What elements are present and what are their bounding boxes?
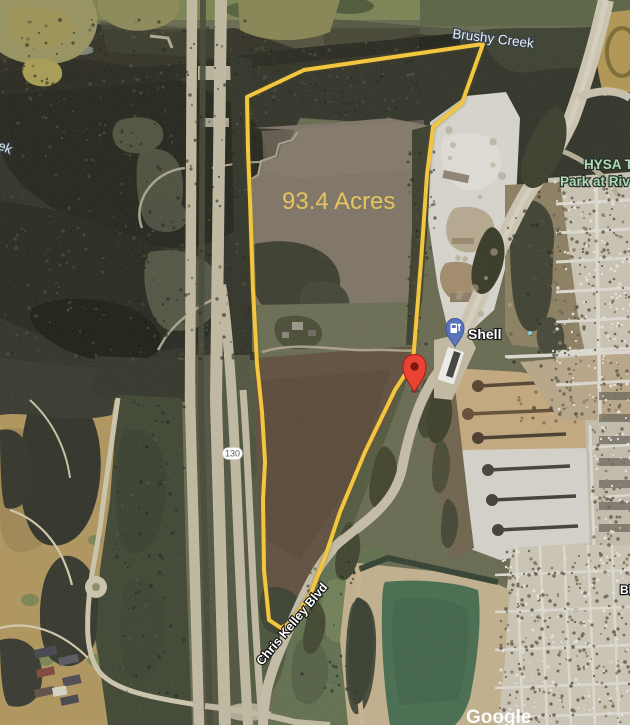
svg-text:Google: Google bbox=[466, 707, 531, 725]
svg-text:Bl: Bl bbox=[620, 583, 630, 597]
svg-text:130: 130 bbox=[225, 449, 240, 459]
svg-text:Park at Riv: Park at Riv bbox=[560, 174, 630, 189]
svg-text:93.4 Acres: 93.4 Acres bbox=[282, 188, 395, 215]
svg-text:HYSA T: HYSA T bbox=[584, 157, 630, 172]
svg-text:Shell: Shell bbox=[468, 326, 501, 342]
